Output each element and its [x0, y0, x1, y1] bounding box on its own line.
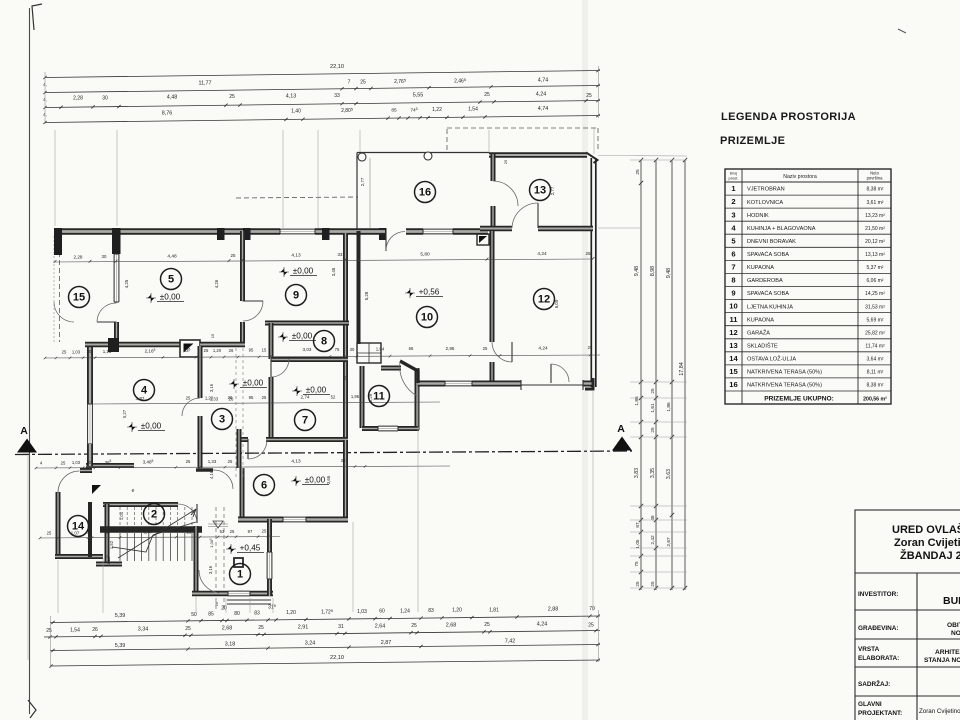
svg-text:BUNARI: BUNARI — [943, 595, 960, 607]
svg-text:87: 87 — [635, 522, 640, 528]
svg-text:Zoran Cvijetinović: Zoran Cvijetinović — [919, 708, 960, 715]
svg-text:8,38 m²: 8,38 m² — [867, 383, 884, 389]
svg-text:15: 15 — [73, 292, 85, 304]
svg-text:26: 26 — [229, 348, 234, 353]
svg-text:25: 25 — [484, 622, 490, 628]
svg-text:16: 16 — [419, 187, 431, 199]
svg-text:INVESTITOR:: INVESTITOR: — [858, 591, 898, 598]
svg-text:15: 15 — [342, 375, 347, 380]
svg-text:LJETNA KUHINJA: LJETNA KUHINJA — [747, 304, 793, 310]
svg-text:11,77: 11,77 — [198, 81, 211, 87]
svg-text:1,86: 1,86 — [634, 396, 640, 406]
svg-text:75: 75 — [634, 561, 639, 567]
svg-text:97: 97 — [248, 529, 253, 534]
svg-text:ELABORATA:: ELABORATA: — [858, 655, 899, 662]
svg-text:26: 26 — [229, 396, 234, 401]
svg-text:1,20: 1,20 — [452, 608, 462, 614]
svg-text:11,74 m²: 11,74 m² — [865, 343, 885, 349]
svg-text:3,24: 3,24 — [305, 641, 316, 647]
svg-text:25: 25 — [258, 625, 264, 631]
svg-text:1,03: 1,03 — [72, 460, 81, 465]
svg-text:200,56 m²: 200,56 m² — [863, 397, 887, 403]
svg-text:2,68: 2,68 — [446, 623, 457, 629]
svg-text:25: 25 — [650, 427, 655, 433]
svg-text:3,35: 3,35 — [650, 468, 656, 478]
svg-text:2,95: 2,95 — [446, 346, 455, 351]
svg-text:75: 75 — [335, 347, 340, 352]
svg-text:3,18: 3,18 — [225, 642, 236, 648]
svg-text:1,54: 1,54 — [468, 107, 478, 113]
svg-text:PRIZEMLJE UKUPNO:: PRIZEMLJE UKUPNO: — [764, 396, 834, 403]
svg-text:OSTAVA LOŽ-ULJA: OSTAVA LOŽ-ULJA — [747, 355, 796, 363]
svg-text:70: 70 — [589, 606, 595, 612]
svg-text:9,48: 9,48 — [634, 266, 640, 276]
svg-text:26: 26 — [214, 601, 219, 606]
svg-text:25: 25 — [62, 350, 67, 355]
svg-text:8,76: 8,76 — [162, 111, 173, 117]
svg-text:7,42: 7,42 — [505, 639, 516, 645]
svg-text:2,87: 2,87 — [381, 640, 392, 646]
svg-text:STANJA NOVOG: STANJA NOVOG — [924, 657, 960, 664]
svg-text:e: e — [132, 488, 135, 494]
svg-text:1,54: 1,54 — [70, 628, 80, 634]
svg-text:25: 25 — [262, 395, 267, 400]
svg-text:5,28: 5,28 — [364, 291, 369, 300]
svg-text:25: 25 — [231, 253, 236, 258]
svg-text:2,74: 2,74 — [301, 395, 310, 400]
svg-text:3,66: 3,66 — [326, 475, 331, 484]
svg-text:25: 25 — [411, 623, 417, 629]
svg-text:2: 2 — [151, 509, 157, 521]
svg-text:9,48: 9,48 — [666, 268, 672, 278]
svg-text:10: 10 — [729, 302, 737, 311]
svg-text:33: 33 — [334, 93, 340, 99]
svg-text:2,91: 2,91 — [298, 625, 309, 631]
svg-text:1,20: 1,20 — [286, 610, 296, 616]
svg-text:31,53 m²: 31,53 m² — [865, 304, 885, 310]
svg-text:2,67: 2,67 — [666, 537, 672, 547]
svg-text:21,50 m²: 21,50 m² — [865, 226, 885, 232]
svg-text:8,98: 8,98 — [650, 266, 656, 276]
svg-text:6,06 m²: 6,06 m² — [867, 278, 884, 284]
svg-text:A: A — [20, 425, 28, 437]
svg-text:25: 25 — [635, 169, 641, 175]
svg-text:25: 25 — [483, 346, 488, 351]
svg-text:3,47: 3,47 — [144, 530, 153, 535]
svg-text:5: 5 — [168, 274, 174, 286]
svg-text:25: 25 — [61, 460, 66, 465]
svg-text:2: 2 — [731, 197, 735, 206]
svg-text:2,28: 2,28 — [74, 255, 83, 260]
svg-text:URED OVLAŠTENOG: URED OVLAŠTENOG — [892, 523, 960, 536]
svg-text:13: 13 — [534, 185, 546, 197]
svg-text:2,28: 2,28 — [73, 96, 83, 102]
svg-text:4,24: 4,24 — [538, 346, 548, 352]
svg-text:3,63: 3,63 — [666, 469, 672, 479]
svg-text:4,25: 4,25 — [124, 279, 129, 288]
svg-text:±0,00: ±0,00 — [293, 266, 314, 275]
svg-text:25: 25 — [635, 581, 640, 587]
svg-text:5,69 m²: 5,69 m² — [867, 317, 884, 323]
svg-text:15: 15 — [210, 333, 215, 338]
svg-text:DNEVNI BORAVAK: DNEVNI BORAVAK — [747, 239, 796, 245]
svg-text:SPAVAĆA SOBA: SPAVAĆA SOBA — [747, 290, 789, 297]
svg-text:1,03: 1,03 — [357, 609, 367, 615]
svg-text:9: 9 — [731, 289, 735, 298]
svg-text:25: 25 — [228, 459, 233, 464]
svg-text:25: 25 — [360, 80, 366, 86]
svg-text:±0,00: ±0,00 — [305, 475, 326, 484]
svg-text:6: 6 — [731, 249, 735, 258]
svg-text:25: 25 — [586, 93, 592, 99]
svg-text:1,05: 1,05 — [635, 539, 640, 548]
svg-text:3,03: 3,03 — [303, 347, 312, 352]
svg-text:25: 25 — [186, 396, 191, 401]
svg-text:±0,00: ±0,00 — [306, 385, 327, 394]
svg-text:4,13: 4,13 — [286, 94, 297, 100]
svg-text:22,10: 22,10 — [330, 64, 344, 70]
svg-text:KUPAONA: KUPAONA — [747, 265, 774, 271]
svg-text:±0,00: ±0,00 — [160, 292, 181, 301]
svg-text:GARDEROBA: GARDEROBA — [747, 278, 783, 284]
svg-text:33: 33 — [338, 252, 343, 257]
svg-text:12: 12 — [538, 294, 550, 306]
svg-text:3: 3 — [219, 414, 225, 426]
svg-text:4,74: 4,74 — [538, 78, 549, 84]
svg-text:53: 53 — [220, 529, 225, 534]
svg-text:15: 15 — [729, 367, 738, 376]
svg-text:2,88: 2,88 — [548, 607, 559, 613]
svg-text:52: 52 — [331, 394, 336, 399]
svg-text:26: 26 — [92, 627, 98, 633]
svg-text:25: 25 — [262, 529, 267, 534]
svg-text:22,10: 22,10 — [330, 655, 344, 661]
svg-text:3,34: 3,34 — [138, 627, 149, 633]
svg-text:GARAŽA: GARAŽA — [747, 328, 770, 336]
svg-text:14: 14 — [72, 521, 85, 533]
svg-text:1,03: 1,03 — [72, 350, 81, 355]
svg-text:5,80: 5,80 — [420, 252, 430, 258]
svg-text:13,23 m²: 13,23 m² — [865, 213, 885, 219]
svg-text:66: 66 — [409, 346, 414, 351]
svg-text:SADRŽAJ:: SADRŽAJ: — [858, 679, 890, 688]
svg-text:17,84: 17,84 — [679, 362, 685, 376]
svg-text:60: 60 — [379, 609, 385, 615]
svg-text:1,18: 1,18 — [103, 349, 112, 354]
svg-text:SPAVAĆA SOBA: SPAVAĆA SOBA — [747, 251, 789, 258]
svg-text:30: 30 — [350, 347, 355, 352]
svg-text:14: 14 — [729, 354, 738, 363]
svg-text:ŽBANDAJ 281: ŽBANDAJ 281 — [900, 549, 960, 562]
svg-text:±0,00: ±0,00 — [292, 331, 313, 340]
svg-text:7: 7 — [348, 80, 351, 86]
svg-text:3,83: 3,83 — [634, 468, 640, 478]
svg-text:4,24: 4,24 — [537, 622, 548, 628]
svg-text:25: 25 — [186, 459, 191, 464]
svg-text:31: 31 — [338, 624, 344, 630]
svg-text:85: 85 — [391, 108, 397, 114]
svg-text:5,39: 5,39 — [115, 613, 126, 619]
svg-text:25: 25 — [503, 159, 508, 164]
svg-text:26: 26 — [105, 530, 110, 535]
svg-text:25: 25 — [204, 348, 209, 353]
svg-text:7: 7 — [302, 415, 308, 427]
svg-text:25: 25 — [650, 581, 655, 587]
svg-text:25: 25 — [187, 529, 192, 534]
svg-text:7: 7 — [731, 263, 735, 272]
svg-text:25: 25 — [47, 531, 52, 536]
svg-text:NOVO: NOVO — [951, 630, 960, 637]
svg-text:LEGENDA PROSTORIJA: LEGENDA PROSTORIJA — [721, 111, 856, 123]
svg-text:+0,45: +0,45 — [240, 543, 261, 552]
svg-text:4,48: 4,48 — [167, 95, 178, 101]
svg-text:11: 11 — [373, 391, 385, 403]
svg-text:25: 25 — [588, 623, 594, 629]
svg-text:15: 15 — [262, 348, 267, 353]
svg-text:KOTLOVNICA: KOTLOVNICA — [747, 200, 783, 206]
svg-text:25: 25 — [588, 345, 593, 350]
svg-text:4,74: 4,74 — [538, 106, 549, 112]
svg-text:2,68: 2,68 — [222, 626, 233, 632]
svg-text:14,25 m²: 14,25 m² — [865, 291, 885, 297]
svg-text:površina: površina — [867, 176, 883, 181]
svg-text:KUPAONA: KUPAONA — [747, 317, 774, 323]
svg-text:5,27: 5,27 — [122, 409, 127, 418]
svg-text:Zoran Cvijetinović: Zoran Cvijetinović — [894, 537, 960, 549]
svg-text:6: 6 — [261, 480, 267, 492]
svg-text:1,61: 1,61 — [650, 403, 656, 413]
svg-text:prost.: prost. — [728, 176, 738, 181]
svg-text:GRAĐEVINA:: GRAĐEVINA: — [858, 625, 898, 632]
svg-text:5,55: 5,55 — [413, 93, 424, 99]
svg-text:1,20: 1,20 — [213, 348, 222, 353]
svg-text:25: 25 — [46, 628, 52, 634]
svg-text:5,39: 5,39 — [115, 643, 126, 649]
svg-text:SKLADIŠTE: SKLADIŠTE — [747, 342, 778, 349]
svg-text:4,13: 4,13 — [291, 253, 301, 259]
svg-text:25: 25 — [586, 251, 591, 256]
svg-text:Naziv prostora: Naziv prostora — [783, 174, 817, 180]
svg-text:NATKRIVENA TERASA (50%): NATKRIVENA TERASA (50%) — [747, 383, 822, 389]
svg-text:83: 83 — [428, 608, 434, 614]
svg-text:83: 83 — [254, 611, 260, 617]
svg-text:GLAVNI: GLAVNI — [858, 701, 882, 708]
svg-text:2,42: 2,42 — [650, 535, 656, 545]
svg-text:4,24: 4,24 — [536, 92, 547, 98]
svg-text:1,94: 1,94 — [376, 347, 385, 352]
svg-text:25: 25 — [229, 94, 235, 100]
svg-text:85: 85 — [208, 612, 214, 618]
svg-text:1,86: 1,86 — [666, 402, 672, 412]
svg-text:1,22: 1,22 — [432, 107, 442, 113]
svg-text:20,12 m²: 20,12 m² — [865, 239, 885, 245]
svg-text:25,82 m²: 25,82 m² — [865, 330, 885, 336]
svg-text:25: 25 — [230, 529, 235, 534]
svg-text:16: 16 — [729, 380, 737, 389]
svg-text:3,45: 3,45 — [331, 267, 336, 276]
svg-text:8,11 m²: 8,11 m² — [867, 370, 884, 376]
svg-text:4,26: 4,26 — [214, 279, 219, 288]
svg-text:4,48: 4,48 — [167, 254, 177, 260]
svg-text:VRSTA: VRSTA — [858, 646, 880, 653]
svg-text:8,38 m²: 8,38 m² — [867, 187, 884, 193]
svg-text:30: 30 — [102, 96, 108, 102]
svg-text:VJETROBRAN: VJETROBRAN — [747, 187, 785, 193]
svg-text:25: 25 — [650, 388, 655, 394]
svg-text:3,16: 3,16 — [208, 565, 213, 574]
svg-text:+0,56: +0,56 — [419, 287, 440, 296]
svg-text:PRIZEMLJE: PRIZEMLJE — [720, 135, 785, 147]
svg-text:8: 8 — [731, 276, 735, 285]
svg-text:3,61 m²: 3,61 m² — [867, 200, 884, 206]
svg-text:ARHITEKT.: ARHITEKT. — [935, 649, 960, 656]
svg-text:25: 25 — [185, 626, 191, 632]
svg-text:33: 33 — [341, 458, 346, 463]
svg-text:HODNIK: HODNIK — [747, 213, 769, 219]
svg-text:3,16: 3,16 — [209, 383, 214, 392]
svg-text:3: 3 — [731, 210, 735, 219]
svg-text:±0,00: ±0,00 — [141, 421, 162, 430]
svg-text:1,33: 1,33 — [210, 397, 219, 402]
svg-text:1,40: 1,40 — [291, 109, 301, 115]
svg-text:1,81: 1,81 — [489, 608, 499, 614]
svg-text:95: 95 — [249, 395, 254, 400]
svg-text:4: 4 — [141, 385, 148, 397]
svg-text:3,64 m²: 3,64 m² — [867, 357, 884, 363]
svg-text:1,33: 1,33 — [208, 459, 217, 464]
svg-text:4,13: 4,13 — [291, 459, 301, 465]
svg-text:1,24: 1,24 — [400, 609, 410, 615]
svg-text:A: A — [617, 423, 625, 435]
svg-text:KUHINJA + BLAGOVAONA: KUHINJA + BLAGOVAONA — [747, 226, 816, 232]
svg-text:80: 80 — [234, 611, 240, 617]
svg-text:2,77: 2,77 — [360, 177, 365, 186]
svg-text:5,37 m²: 5,37 m² — [867, 265, 884, 271]
svg-text:95: 95 — [249, 348, 254, 353]
svg-text:PROJEKTANT:: PROJEKTANT: — [858, 710, 902, 717]
svg-text:25: 25 — [484, 92, 490, 98]
svg-text:4,24: 4,24 — [537, 251, 547, 257]
svg-text:1,52: 1,52 — [109, 540, 114, 549]
svg-text:11: 11 — [729, 315, 738, 324]
svg-text:8: 8 — [321, 336, 327, 348]
svg-text:9: 9 — [293, 290, 299, 302]
svg-text:30: 30 — [102, 254, 107, 259]
svg-text:1: 1 — [237, 569, 243, 581]
svg-text:30: 30 — [87, 349, 92, 354]
svg-text:NATKRIVENA TERASA (50%): NATKRIVENA TERASA (50%) — [747, 370, 822, 376]
svg-text:1,96: 1,96 — [351, 394, 360, 399]
svg-text:10: 10 — [421, 312, 433, 324]
svg-text:OBITELJSKA: OBITELJSKA — [947, 622, 960, 629]
svg-text:13,13 m²: 13,13 m² — [865, 252, 885, 258]
svg-text:1,04: 1,04 — [119, 511, 124, 520]
svg-text:12: 12 — [729, 328, 737, 337]
svg-text:2,64: 2,64 — [375, 624, 386, 630]
svg-text:13: 13 — [729, 341, 737, 350]
svg-text:±0,00: ±0,00 — [243, 378, 264, 387]
svg-text:30: 30 — [87, 460, 92, 465]
